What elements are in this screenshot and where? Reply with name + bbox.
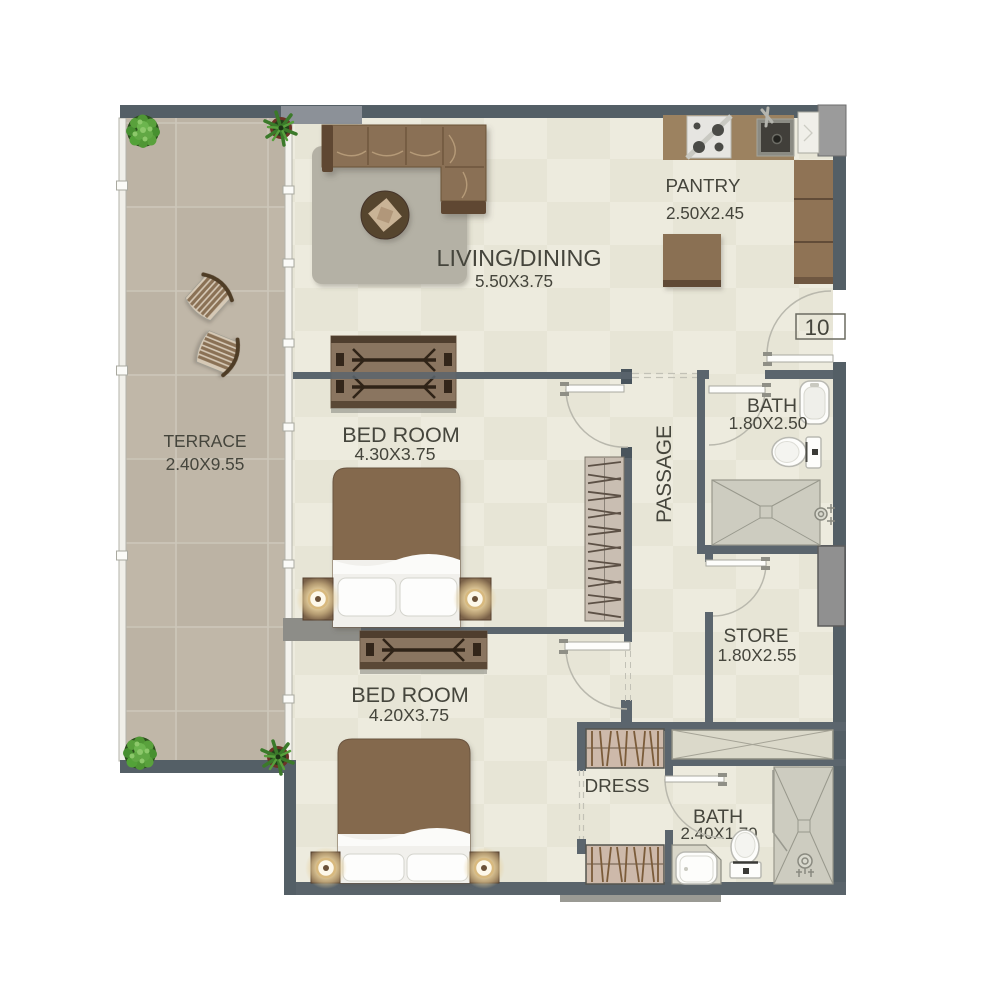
svg-text:5.50X3.75: 5.50X3.75 [475, 272, 553, 291]
svg-text:TERRACE: TERRACE [163, 431, 246, 451]
svg-text:2.40X9.55: 2.40X9.55 [166, 454, 245, 474]
svg-text:2.50X2.45: 2.50X2.45 [666, 204, 744, 223]
svg-text:10: 10 [804, 315, 829, 340]
svg-text:BED ROOM: BED ROOM [351, 682, 469, 707]
svg-text:1.80X2.55: 1.80X2.55 [718, 645, 797, 665]
svg-text:STORE: STORE [723, 626, 788, 647]
svg-text:4.30X3.75: 4.30X3.75 [354, 444, 435, 464]
svg-text:DRESS: DRESS [584, 776, 649, 797]
svg-text:4.20X3.75: 4.20X3.75 [369, 705, 449, 725]
svg-text:PANTRY: PANTRY [666, 176, 741, 197]
svg-text:1.80X2.50: 1.80X2.50 [729, 413, 808, 433]
svg-text:PASSAGE: PASSAGE [653, 425, 676, 523]
svg-text:LIVING/DINING: LIVING/DINING [436, 245, 601, 271]
